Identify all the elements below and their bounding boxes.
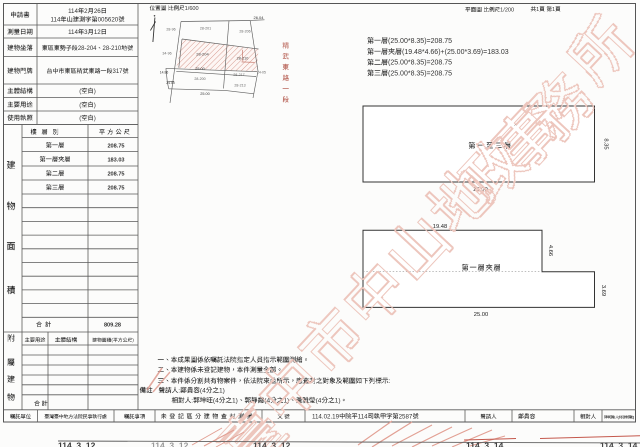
svg-text:183.03: 183.03 <box>107 157 124 163</box>
svg-text:005620: 005620 <box>98 17 119 24</box>
svg-text:114: 114 <box>68 8 78 15</box>
svg-text:2587: 2587 <box>399 413 413 420</box>
svg-text:): ) <box>94 88 96 95</box>
svg-text:114. 3. 12: 114. 3. 12 <box>151 441 189 447</box>
svg-text:(25.00*8.35)=208.75: (25.00*8.35)=208.75 <box>388 70 452 77</box>
svg-text:(4: (4 <box>200 388 206 395</box>
svg-text:3: 3 <box>84 29 88 36</box>
svg-text:1): 1) <box>219 388 225 395</box>
svg-text:28-201: 28-201 <box>200 27 211 31</box>
svg-text:1): 1) <box>335 398 341 405</box>
svg-text:2: 2 <box>84 8 88 15</box>
svg-text:28-210: 28-210 <box>237 57 249 61</box>
svg-text:114. 3. 12: 114. 3. 12 <box>253 441 291 447</box>
svg-text:114. 3. 14: 114. 3. 14 <box>466 441 504 447</box>
svg-text:114: 114 <box>51 17 61 24</box>
svg-text:28-200: 28-200 <box>194 77 205 81</box>
svg-text:28-204: 28-204 <box>196 52 209 57</box>
svg-text:): ) <box>633 415 634 419</box>
svg-text:(25.00*8.35)=208.75: (25.00*8.35)=208.75 <box>388 38 452 45</box>
svg-text:28-204: 28-204 <box>78 46 97 52</box>
svg-text:114: 114 <box>68 29 78 36</box>
svg-text:28-217: 28-217 <box>233 73 244 77</box>
svg-text:24-05: 24-05 <box>257 71 266 75</box>
svg-text:114. 3. 14: 114. 3. 14 <box>600 441 638 447</box>
svg-text:1/200: 1/200 <box>500 8 514 14</box>
svg-text:26: 26 <box>94 8 101 15</box>
svg-text:(4: (4 <box>213 398 219 405</box>
svg-text:25.00: 25.00 <box>200 92 210 96</box>
svg-text::: : <box>178 388 180 395</box>
svg-text:25.00: 25.00 <box>195 67 205 71</box>
svg-text:114: 114 <box>358 413 368 420</box>
svg-text:208.75: 208.75 <box>107 143 124 149</box>
svg-text:25.00: 25.00 <box>474 312 489 318</box>
svg-text:(25.00*8.35)=208.75: (25.00*8.35)=208.75 <box>388 60 452 67</box>
svg-text:12: 12 <box>94 29 101 36</box>
svg-text:114. 3. 12: 114. 3. 12 <box>58 441 96 447</box>
svg-text:14.86: 14.86 <box>160 70 169 74</box>
svg-text:(: ( <box>111 338 113 344</box>
svg-text:(4: (4 <box>316 398 322 405</box>
svg-text:28-213: 28-213 <box>234 84 245 88</box>
svg-text:28-206: 28-206 <box>239 30 250 34</box>
svg-text:114.02.19: 114.02.19 <box>312 413 340 420</box>
svg-text:(19.48*4.66)+(25.00*3.69)=183.: (19.48*4.66)+(25.00*3.69)=183.03 <box>402 49 509 56</box>
svg-text::: : <box>191 398 193 405</box>
svg-text:24.05: 24.05 <box>166 81 175 85</box>
svg-text:28-210: 28-210 <box>103 46 122 52</box>
svg-text:4.66: 4.66 <box>547 245 553 256</box>
svg-text:28-96: 28-96 <box>166 28 175 32</box>
svg-text:34-96: 34-96 <box>162 52 171 56</box>
svg-text:3.69: 3.69 <box>600 285 606 296</box>
svg-text:1: 1 <box>552 7 555 13</box>
svg-text:809.28: 809.28 <box>104 323 121 329</box>
svg-text:1): 1) <box>232 398 238 405</box>
svg-text:1/600: 1/600 <box>185 6 199 12</box>
svg-text:208.75: 208.75 <box>107 172 124 178</box>
svg-text::: : <box>389 378 391 385</box>
svg-text:317: 317 <box>113 69 124 75</box>
svg-text:1: 1 <box>536 7 539 13</box>
svg-text:): ) <box>132 338 134 344</box>
svg-text:8.35: 8.35 <box>603 138 609 149</box>
svg-text:208.75: 208.75 <box>107 186 124 192</box>
svg-text:): ) <box>94 115 96 122</box>
svg-text:): ) <box>94 102 96 109</box>
svg-text:19.48: 19.48 <box>433 224 448 230</box>
svg-text:26.04: 26.04 <box>253 15 264 20</box>
svg-text:3: 3 <box>613 415 615 419</box>
